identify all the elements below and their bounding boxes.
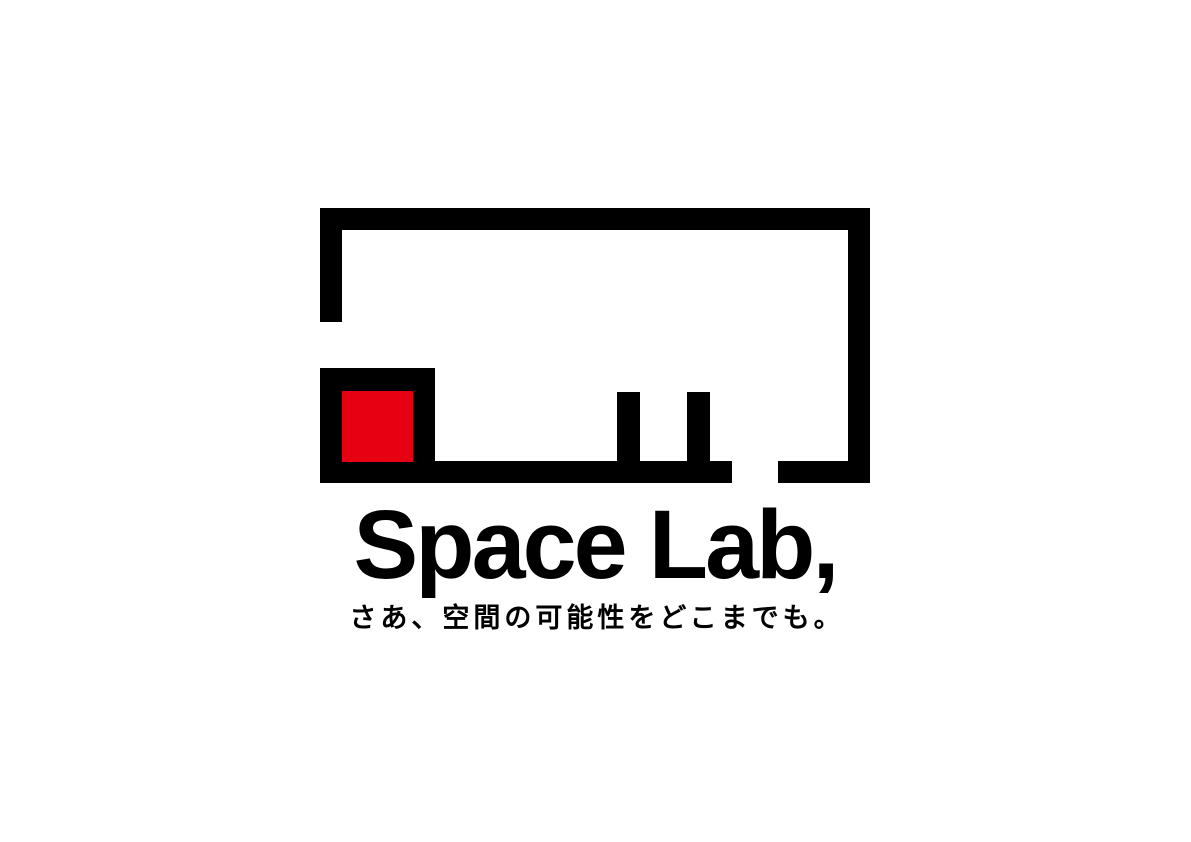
pillar-right xyxy=(687,392,710,461)
tagline: さあ、空間の可能性をどこまでも。 xyxy=(220,602,970,636)
logo-canvas: Space Lab, さあ、空間の可能性をどこまでも。 xyxy=(0,0,1191,842)
room-box xyxy=(320,368,435,483)
space-lab-logo: Space Lab, さあ、空間の可能性をどこまでも。 xyxy=(0,0,1191,842)
floor-edge-main xyxy=(435,461,732,483)
floor-edge-right xyxy=(778,461,870,483)
wordmark: Space Lab, xyxy=(320,496,870,593)
logo-mark xyxy=(320,208,870,483)
red-square xyxy=(342,391,413,462)
frame-left-edge-upper xyxy=(320,208,342,322)
frame-right-edge xyxy=(848,208,870,483)
pillar-left xyxy=(617,392,640,461)
frame-top-edge xyxy=(320,208,870,230)
